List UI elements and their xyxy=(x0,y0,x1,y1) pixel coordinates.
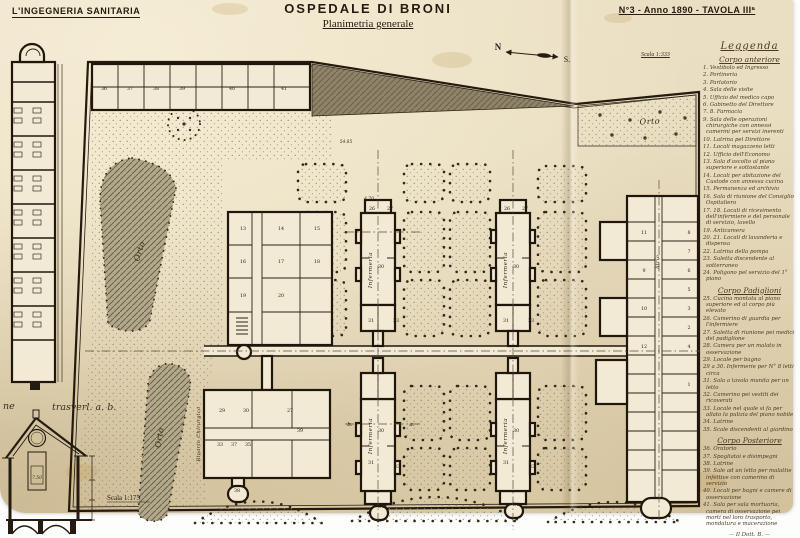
pavilion-label-1: Infermeria xyxy=(368,252,374,289)
dimension-label: 4.70 xyxy=(363,197,374,202)
room-number: 4 xyxy=(687,344,690,350)
legend-item: 9. Sala delle operazioni chirurgiche con… xyxy=(703,117,796,136)
room-number: 33 xyxy=(528,318,534,324)
service-building-upper xyxy=(228,212,332,390)
room-number: 27 xyxy=(522,206,528,212)
room-number: 30 xyxy=(378,428,384,434)
legend-item: 35. Scale discendenti al giardino xyxy=(703,427,796,433)
room-number: 33 xyxy=(394,464,400,470)
room-number: 20 xyxy=(278,293,284,299)
room-number: 1 xyxy=(687,382,690,388)
room-number: 39 xyxy=(297,428,303,434)
pavilion-label-4: Infermeria xyxy=(503,418,509,455)
room-number: 30 xyxy=(513,428,519,434)
room-number: 9 xyxy=(642,268,645,274)
room-number: 26 xyxy=(504,206,510,212)
room-number: 6 xyxy=(687,268,690,274)
room-number: 30 xyxy=(513,264,519,270)
legend-item: 39. Sale ad un letto per malattie infett… xyxy=(703,468,796,487)
plate-title-block: OSPEDALE DI BRONI Planimetria generale xyxy=(278,1,458,30)
embankment-wedge xyxy=(312,64,574,116)
room-number: 2 xyxy=(687,325,690,331)
anterior-building xyxy=(596,196,698,518)
legend-item: 26. Camerino di guardia per l'infermiere xyxy=(703,316,796,329)
room-number: 31 xyxy=(368,318,374,324)
section-marker: b. xyxy=(347,422,353,428)
room-number: 37 xyxy=(231,442,237,448)
surgical-ward-label: Riparto Chirurgico xyxy=(196,406,202,462)
plate-subtitle: Planimetria generale xyxy=(278,18,458,30)
section-marker: c. xyxy=(376,518,381,524)
issue-number: N°3 - Anno 1890 - TAVOLA IIIª xyxy=(588,5,786,15)
legend-item: 41. Sala per sala mortuaria, camera di o… xyxy=(703,502,796,528)
room-number: 36 xyxy=(101,86,107,92)
room-number: 39 xyxy=(179,86,185,92)
room-number: 12 xyxy=(641,344,647,350)
legend-item: 5. Ufficio del medico capo xyxy=(703,95,796,101)
pavilion-detail-plan xyxy=(12,44,65,390)
room-number: 30 xyxy=(243,408,249,414)
room-number: 34 xyxy=(513,502,519,508)
room-number: 27 xyxy=(387,206,393,212)
room-number: 18 xyxy=(314,259,320,265)
legend-item: 27. Saletta di riunione pei medici del p… xyxy=(703,330,796,343)
legend-item: 16. Sala di riunione del Consiglio Ospit… xyxy=(703,194,796,207)
legend-item: 6. Gabinetto del Direttore xyxy=(703,102,796,108)
plate-title: OSPEDALE DI BRONI xyxy=(278,1,458,16)
legend-item: 31. Sala a tavola munita per un letto xyxy=(703,378,796,391)
pavilion-label-2: Infermeria xyxy=(503,252,509,289)
legend-item: 10. Latrina pel Direttore xyxy=(703,137,796,143)
posterior-building-band xyxy=(92,64,310,110)
room-number: 26 xyxy=(369,206,375,212)
legend-item: 38. Latrine xyxy=(703,461,796,467)
dimension-label: 54.85 xyxy=(340,140,353,145)
room-number: 33 xyxy=(393,318,399,324)
room-number: 40 xyxy=(229,86,235,92)
room-number: 37 xyxy=(127,86,133,92)
legend-item: 22. Latrina della pompa xyxy=(703,249,796,255)
legend-item: 20. 21. Locali di lavanderia e dispensa xyxy=(703,235,796,248)
dimension-label: 7.50 xyxy=(32,476,42,481)
room-number: 3 xyxy=(687,306,690,312)
room-number: 33 xyxy=(217,442,223,448)
legend-item: 2. Portineria xyxy=(703,72,796,78)
room-number: 10 xyxy=(641,306,647,312)
room-number: 31 xyxy=(503,318,509,324)
legend-item: 24. Poligono pel servizio del 1° piano xyxy=(703,270,796,283)
room-number: 13 xyxy=(240,226,246,232)
paper-fold-crease xyxy=(561,0,579,513)
legend-title: Leggenda xyxy=(703,41,796,52)
room-number: 31 xyxy=(503,460,509,466)
legend-item: 7. 8. Farmacia xyxy=(703,109,796,115)
room-number: 31 xyxy=(368,460,374,466)
room-number: 33 xyxy=(529,464,535,470)
legend-item: 12. Ufficio dell'Economo xyxy=(703,152,796,158)
legend-item: 4. Sala delle visite xyxy=(703,87,796,93)
room-number: 17 xyxy=(278,259,284,265)
legend-item: 32. Camerino pei vestiti dei ricoverati xyxy=(703,392,796,405)
section-caption-left: ne xyxy=(3,401,15,412)
legend-item: 23. Saletta discendente al sotterraneo xyxy=(703,256,796,269)
legend-item: 19. Anticamera xyxy=(703,228,796,234)
legend-sections: Corpo anteriore1. Vestibolo ed Ingresso2… xyxy=(703,55,796,528)
room-number: 8 xyxy=(687,230,690,236)
legend-item: 29. Locale per bagno xyxy=(703,357,796,363)
room-number: 19 xyxy=(240,293,246,299)
legend-item: 28. Camera per un malato in osservazione xyxy=(703,343,796,356)
room-number: 29 xyxy=(219,408,225,414)
room-number: 35 xyxy=(245,442,251,448)
legend-item: 1. Vestibolo ed Ingresso xyxy=(703,65,796,71)
legend-item: 40. Locali per bagni e camere di osserva… xyxy=(703,488,796,501)
infirmary-pavilions xyxy=(356,200,535,520)
legend-item: 11. Locali magazzeno letti xyxy=(703,144,796,150)
legend-section-heading: Corpo anteriore xyxy=(703,55,796,64)
legend-item: 15. Permanenza ed archivio xyxy=(703,186,796,192)
journal-masthead: L'INGEGNERIA SANITARIA xyxy=(12,6,140,18)
legend-item: 34. Latrine xyxy=(703,419,796,425)
room-number: 7 xyxy=(687,249,690,255)
legend-item: 13. Sala d'ascolto al piano superiore e … xyxy=(703,159,796,172)
room-number: 34 xyxy=(378,504,384,510)
section-marker: a. xyxy=(409,422,414,428)
legend-item: 29 a 30. Infermerie per N° 8 letti circa xyxy=(703,364,796,377)
plan-scale-label: Scala 1:333 xyxy=(641,52,670,58)
pavilion-label-3: Infermeria xyxy=(368,418,374,455)
room-number: 38 xyxy=(153,86,159,92)
room-number: 30 xyxy=(378,264,384,270)
atrium-label: Atrio xyxy=(655,255,661,271)
compass-rose: N S. xyxy=(495,42,570,64)
legend-panel: Leggenda Corpo anteriore1. Vestibolo ed … xyxy=(703,41,796,538)
room-number: 5 xyxy=(687,287,690,293)
room-number: 38 xyxy=(234,488,240,494)
orchard-label: Orto xyxy=(639,116,660,126)
legend-item: 14. Locali per abitazione del Custode co… xyxy=(703,173,796,186)
section-scale-label: Scala 1:175 xyxy=(107,494,140,502)
legend-item: 33. Locale nel quale si fa per allato la… xyxy=(703,406,796,419)
room-number: 16 xyxy=(240,259,246,265)
room-number: 27 xyxy=(287,408,293,414)
compass-needle xyxy=(537,53,551,59)
legend-section-heading: Corpo Posteriore xyxy=(703,436,796,445)
room-number: 11 xyxy=(641,230,647,236)
legend-section-heading: Corpo Padiglioni xyxy=(703,286,796,295)
legend-item: 17. 18. Locali di ricevimento dell'infer… xyxy=(703,208,796,227)
legend-item: 36. Oratorio xyxy=(703,446,796,452)
room-number: 14 xyxy=(278,226,284,232)
compass-north-label: N xyxy=(495,42,502,52)
legend-item: 3. Parlatorio xyxy=(703,80,796,86)
legend-item: 37. Spogliatoi e disimpegni xyxy=(703,454,796,460)
section-caption-right: trasverl. a. b. xyxy=(52,402,116,413)
legend-item: 25. Cucina montata al piano superiore ed… xyxy=(703,296,796,315)
room-number: 15 xyxy=(314,226,320,232)
plan-drawing: N S. Orto Orto Orto Infermeria Infermeri… xyxy=(0,0,800,535)
room-number: 41 xyxy=(281,86,287,92)
